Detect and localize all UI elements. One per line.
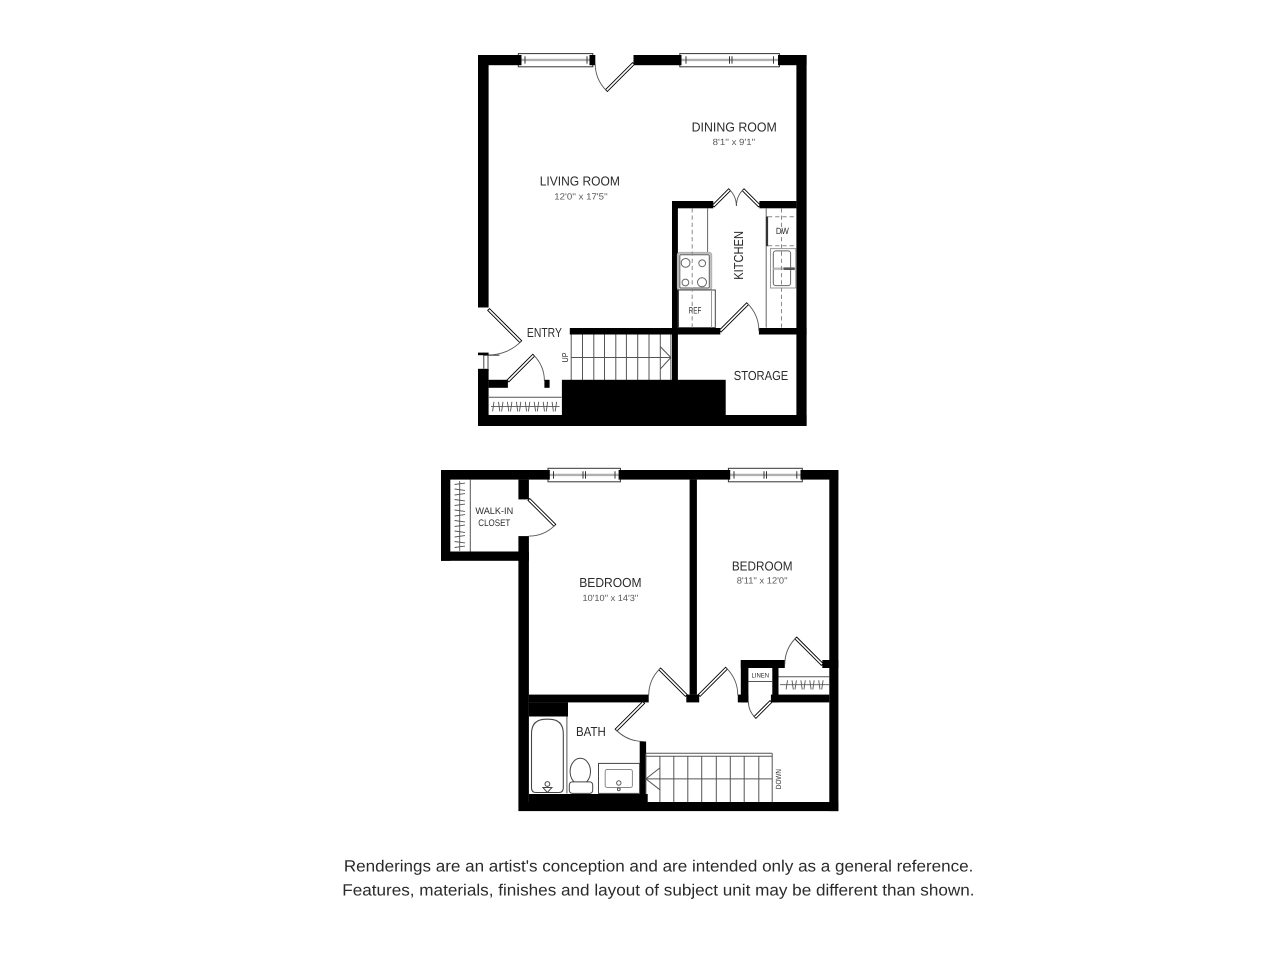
svg-text:UP: UP	[560, 352, 570, 362]
svg-text:KITCHEN: KITCHEN	[731, 231, 746, 280]
svg-text:BATH: BATH	[576, 724, 606, 739]
svg-text:LINEN: LINEN	[751, 672, 769, 679]
svg-text:STORAGE: STORAGE	[734, 368, 789, 383]
svg-text:10'10'' x 14'3'': 10'10'' x 14'3''	[583, 593, 639, 603]
svg-text:WALK-IN: WALK-IN	[475, 506, 513, 517]
svg-text:ENTRY: ENTRY	[527, 325, 562, 340]
svg-text:REF: REF	[689, 305, 702, 315]
svg-text:12'0'' x 17'5'': 12'0'' x 17'5''	[554, 191, 608, 201]
svg-text:DOWN: DOWN	[774, 769, 783, 789]
svg-text:CLOSET: CLOSET	[478, 518, 510, 529]
svg-text:DINING ROOM: DINING ROOM	[692, 120, 777, 135]
svg-text:BEDROOM: BEDROOM	[579, 575, 641, 590]
svg-text:8'11'' x 12'0'': 8'11'' x 12'0''	[737, 576, 788, 586]
svg-text:Features, materials, finishes: Features, materials, finishes and layout…	[342, 882, 974, 900]
svg-text:DW: DW	[776, 226, 789, 236]
svg-text:LIVING ROOM: LIVING ROOM	[540, 173, 620, 188]
svg-text:8'1'' x 9'1'': 8'1'' x 9'1''	[713, 137, 756, 147]
svg-text:BEDROOM: BEDROOM	[732, 559, 793, 574]
svg-text:Renderings are an artist's con: Renderings are an artist's conception an…	[344, 858, 974, 876]
